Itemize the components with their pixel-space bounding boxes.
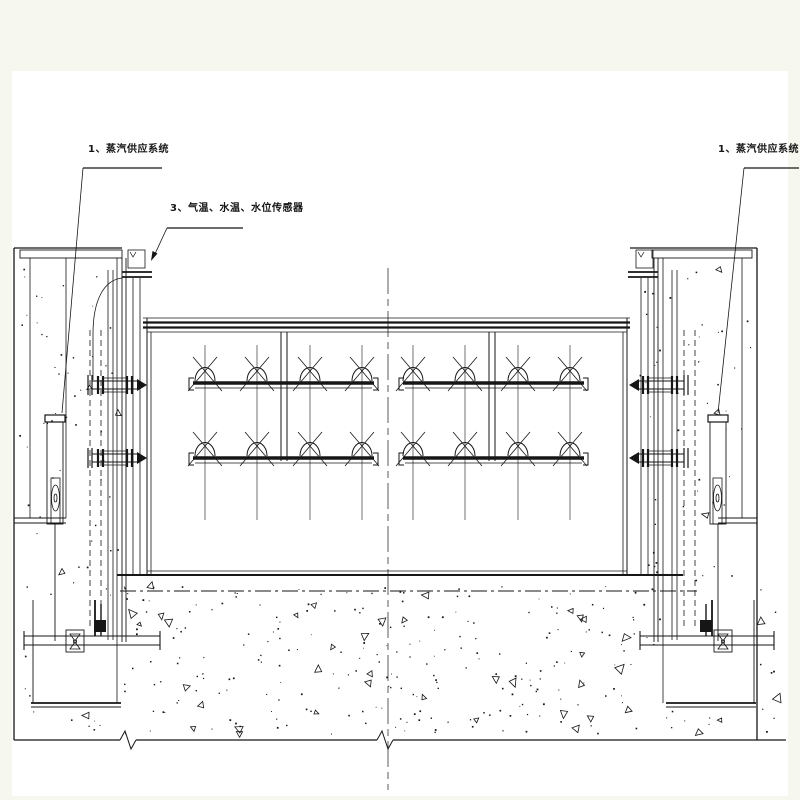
drawing-canvas: 1、蒸汽供应系统 3、气温、水温、水位传感器 1、蒸汽供应系统: [0, 0, 800, 800]
sensor-label: 3、气温、水温、水位传感器: [170, 201, 304, 214]
engineering-section-drawing: 1、蒸汽供应系统 3、气温、水温、水位传感器 1、蒸汽供应系统: [0, 0, 800, 800]
left-system-label: 1、蒸汽供应系统: [88, 142, 169, 155]
right-system-label: 1、蒸汽供应系统: [718, 142, 799, 155]
